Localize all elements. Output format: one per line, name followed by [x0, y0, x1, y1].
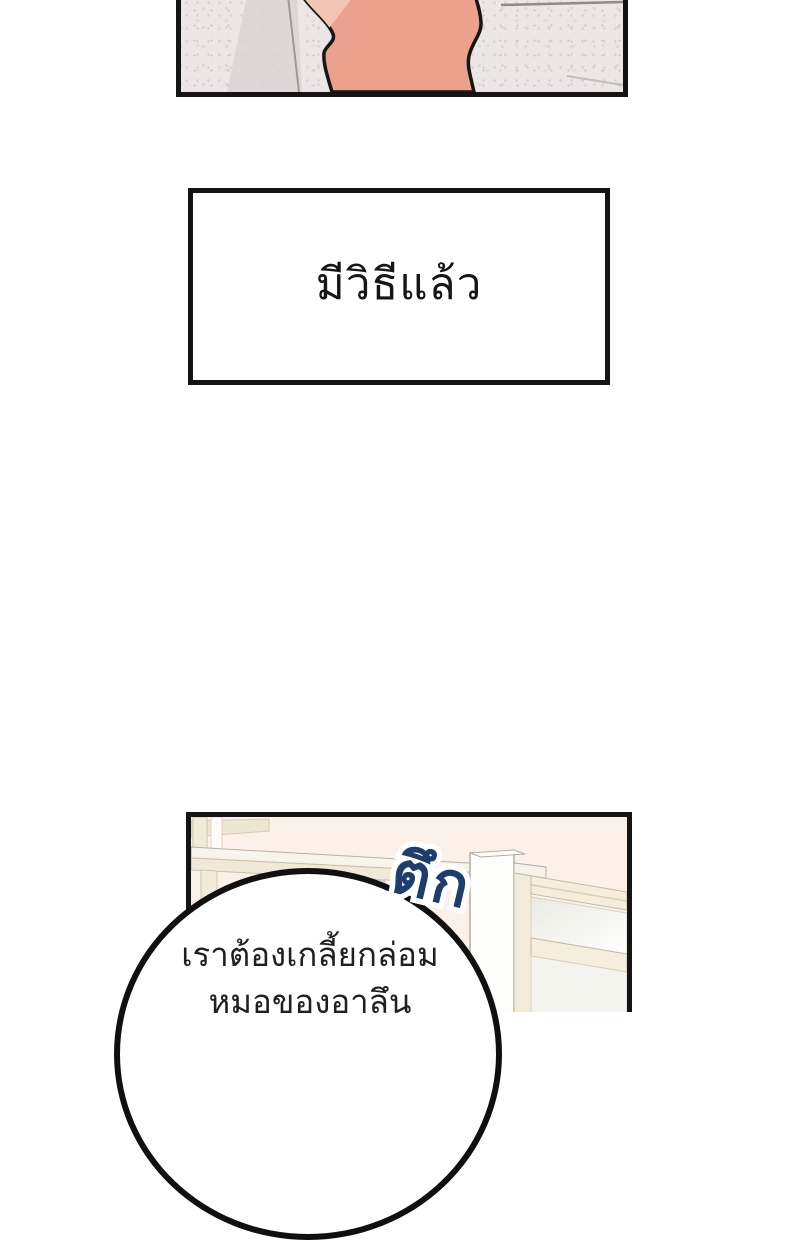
speech-bubble-text: เราต้องเกลี้ยกล่อม หมอของอาลึน — [130, 931, 490, 1025]
arm-closeup-illustration — [181, 0, 623, 92]
top-panel — [176, 0, 628, 97]
narration-text: มีวิธีแล้ว — [316, 249, 483, 325]
speech-line-2: หมอของอาลึน — [130, 978, 490, 1025]
tile-grout-line-bottom-right — [567, 76, 623, 85]
comic-page: { "page": { "type": "webtoon-comic-page"… — [0, 0, 800, 1000]
speech-bubble — [114, 868, 502, 1240]
tile-grout-line-top-right — [501, 2, 623, 5]
window-left-stile — [514, 873, 531, 1012]
narration-box: มีวิธีแล้ว — [188, 188, 610, 385]
speech-line-1: เราต้องเกลี้ยกล่อม — [130, 931, 490, 978]
